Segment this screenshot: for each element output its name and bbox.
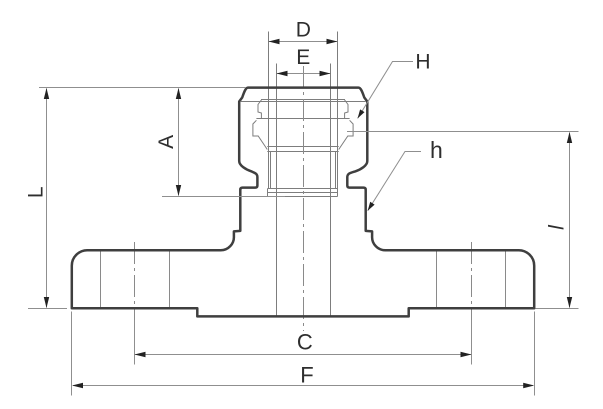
svg-text:C: C [297,330,313,355]
svg-text:A: A [155,135,178,149]
svg-text:H: H [415,51,430,74]
svg-text:E: E [296,46,310,69]
svg-text:D: D [296,19,311,42]
svg-text:F: F [300,362,313,387]
svg-text:L: L [25,186,48,198]
svg-text:h: h [430,137,443,163]
